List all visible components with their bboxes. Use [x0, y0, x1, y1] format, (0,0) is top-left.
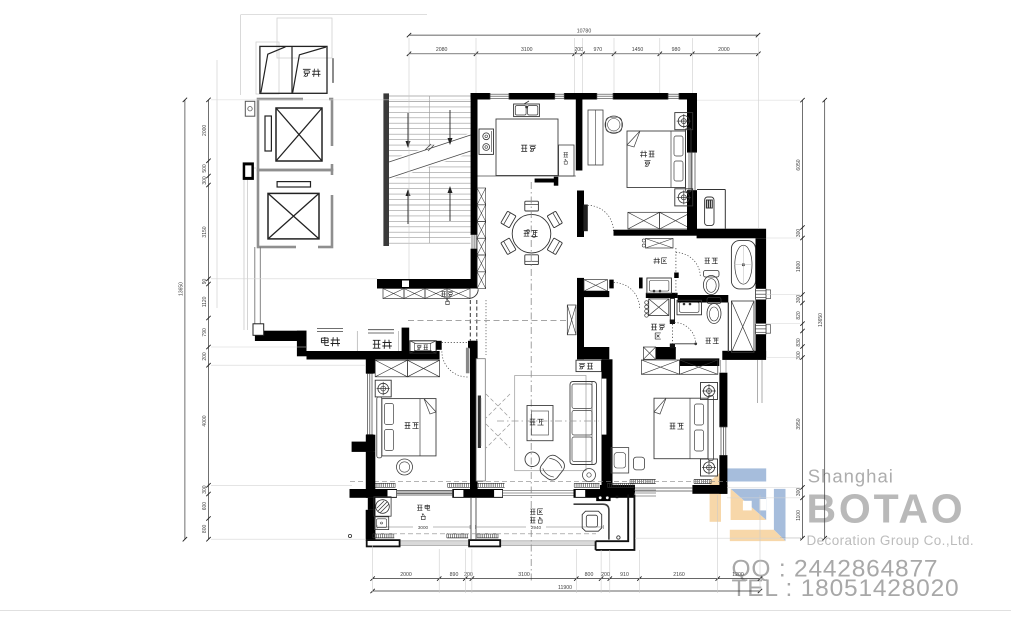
- svg-text:1120: 1120: [202, 296, 208, 307]
- svg-text:910: 910: [620, 572, 629, 578]
- svg-text:200: 200: [574, 47, 583, 53]
- svg-text:1100: 1100: [796, 510, 802, 521]
- svg-text:2080: 2080: [436, 47, 448, 53]
- svg-text:13650: 13650: [179, 282, 185, 296]
- svg-text:300: 300: [796, 229, 802, 238]
- svg-text:11900: 11900: [558, 585, 572, 591]
- svg-text:3150: 3150: [202, 226, 208, 237]
- svg-text:830: 830: [796, 338, 802, 347]
- svg-text:1800: 1800: [796, 261, 802, 272]
- svg-text:800: 800: [585, 572, 594, 578]
- svg-text:890: 890: [450, 572, 459, 578]
- svg-text:500: 500: [202, 164, 208, 173]
- svg-text:2000: 2000: [202, 125, 208, 136]
- svg-text:Decoration Group Co.,Ltd.: Decoration Group Co.,Ltd.: [807, 533, 975, 548]
- svg-text:90: 90: [202, 279, 208, 285]
- svg-text:300: 300: [202, 485, 208, 494]
- svg-text:2000: 2000: [400, 572, 412, 578]
- svg-text:800: 800: [202, 525, 208, 534]
- svg-text:2000: 2000: [718, 47, 730, 53]
- svg-text:970: 970: [593, 47, 602, 53]
- svg-text:3950: 3950: [796, 418, 802, 429]
- svg-text:300: 300: [796, 351, 802, 360]
- svg-text:300: 300: [202, 176, 208, 185]
- svg-text:4000: 4000: [202, 415, 208, 426]
- svg-text:980: 980: [672, 47, 681, 53]
- svg-text:200: 200: [202, 352, 208, 361]
- svg-text:820: 820: [796, 311, 802, 320]
- svg-text:600: 600: [202, 502, 208, 511]
- svg-text:300: 300: [796, 295, 802, 304]
- svg-text:300: 300: [796, 488, 802, 497]
- svg-text:1450: 1450: [632, 47, 644, 53]
- svg-text:TEL : 18051428020: TEL : 18051428020: [732, 575, 960, 602]
- svg-text:3100: 3100: [518, 572, 530, 578]
- svg-text:6050: 6050: [796, 159, 802, 170]
- svg-text:790: 790: [202, 328, 208, 337]
- svg-text:13650: 13650: [818, 313, 824, 327]
- svg-text:3100: 3100: [521, 47, 533, 53]
- svg-text:200: 200: [601, 572, 610, 578]
- svg-text:Shanghai: Shanghai: [808, 466, 894, 487]
- svg-text:1200: 1200: [732, 572, 744, 578]
- svg-text:2940: 2940: [531, 525, 542, 530]
- svg-text:2160: 2160: [673, 572, 685, 578]
- svg-text:3000: 3000: [418, 525, 429, 530]
- svg-text:10780: 10780: [577, 29, 592, 35]
- svg-text:BOTAO: BOTAO: [807, 486, 966, 532]
